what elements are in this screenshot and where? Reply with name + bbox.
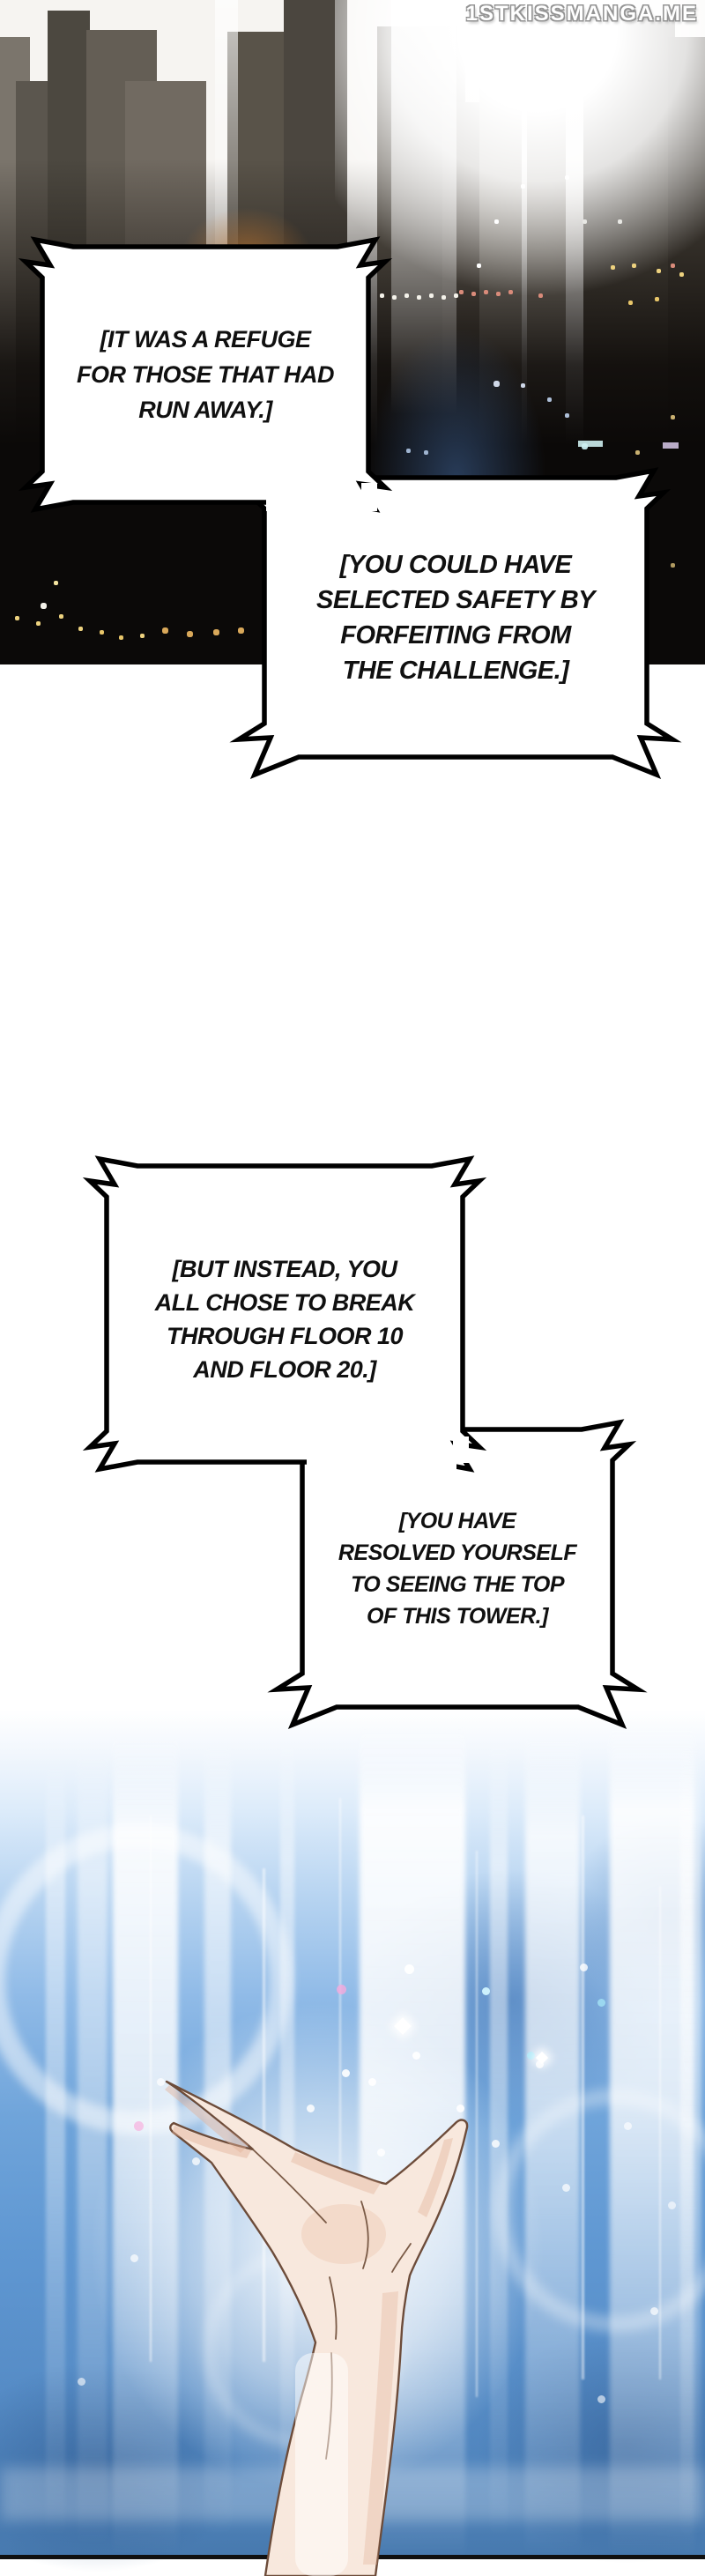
dialogue-line: [YOU COULD HAVE [340,547,572,583]
dialogue-line: [BUT INSTEAD, YOU [172,1252,397,1286]
light-streak [659,1886,661,2379]
dialogue-line: TO SEEING THE TOP [351,1569,564,1600]
red-window-lights [0,0,3,3]
dialogue-line: OF THIS TOWER.] [367,1600,548,1632]
bubble-merge-patch [307,1452,456,1470]
dialogue-line: THE CHALLENGE.] [343,653,569,688]
dialogue-line: RESOLVED YOURSELF [338,1537,576,1569]
light-beam [680,1745,701,2538]
lit-window-bar [578,441,603,447]
dialogue-line: THROUGH FLOOR 10 [167,1319,403,1353]
dialogue-line: RUN AWAY.] [138,392,272,427]
dialogue-line: [YOU HAVE [399,1505,516,1537]
panel-light-beams [0,1710,705,2559]
system-message-bubble-3: [BUT INSTEAD, YOU ALL CHOSE TO BREAK THR… [102,1162,467,1466]
system-message-bubble-1: [IT WAS A REFUGE FOR THOSE THAT HAD RUN … [38,242,373,507]
sparkle-dots-color [0,1710,4,1714]
dialogue-line: FOR THOSE THAT HAD [77,357,334,392]
reaching-hand-illustration [150,2071,476,2576]
bubble-merge-patch [361,483,377,511]
dialogue-line: ALL CHOSE TO BREAK [155,1286,415,1319]
bubble-merge-patch [266,494,367,511]
light-streak [582,1815,584,2379]
dialogue-line: FORFEITING FROM [340,618,571,653]
manga-page: 1STKISSMANGA.ME [YOU COULD HAVE SELECTED… [0,0,705,2576]
system-message-text: [IT WAS A REFUGE FOR THOSE THAT HAD RUN … [38,242,373,507]
dialogue-line: AND FLOOR 20.] [193,1353,376,1386]
light-beam [46,1763,65,2538]
watermark: 1STKISSMANGA.ME [466,2,698,26]
dialogue-line: SELECTED SAFETY BY [316,583,595,618]
dialogue-line: [IT WAS A REFUGE [100,322,311,357]
bubble-merge-patch [453,1436,469,1463]
system-message-text: [BUT INSTEAD, YOU ALL CHOSE TO BREAK THR… [102,1162,467,1466]
